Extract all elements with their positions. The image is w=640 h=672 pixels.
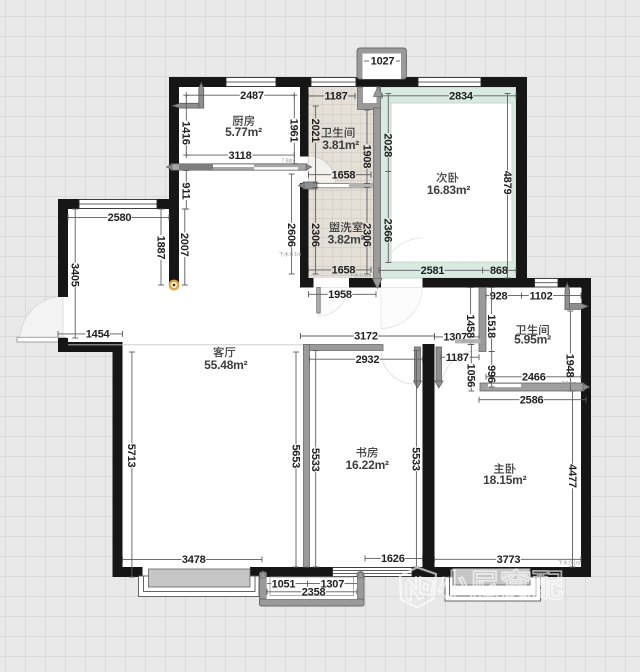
svg-text:3.81m²: 3.81m² bbox=[322, 138, 359, 152]
svg-text:7.8dm: 7.8dm bbox=[282, 158, 296, 164]
svg-text:1027: 1027 bbox=[371, 56, 395, 68]
svg-text:1626: 1626 bbox=[381, 553, 405, 565]
svg-text:1518: 1518 bbox=[485, 314, 497, 338]
svg-text:3118: 3118 bbox=[228, 150, 251, 162]
svg-text:996: 996 bbox=[485, 365, 497, 383]
svg-text:1187: 1187 bbox=[324, 91, 347, 103]
svg-text:1187: 1187 bbox=[446, 352, 469, 364]
svg-text:1658: 1658 bbox=[332, 169, 356, 181]
svg-text:3478: 3478 bbox=[182, 554, 206, 566]
svg-text:5.95m²: 5.95m² bbox=[514, 333, 551, 347]
svg-text:2487: 2487 bbox=[240, 90, 264, 102]
svg-text:2932: 2932 bbox=[356, 354, 380, 366]
svg-text:7.8:0m: 7.8:0m bbox=[561, 381, 576, 387]
svg-text:3.82m²: 3.82m² bbox=[328, 233, 365, 247]
svg-text:1416: 1416 bbox=[180, 121, 192, 145]
svg-text:4477: 4477 bbox=[566, 464, 578, 488]
svg-text:4879: 4879 bbox=[501, 171, 513, 195]
svg-text:1056: 1056 bbox=[465, 364, 477, 388]
svg-text:1948: 1948 bbox=[564, 354, 576, 378]
svg-text:3172: 3172 bbox=[354, 331, 378, 343]
svg-text:1454: 1454 bbox=[86, 329, 111, 341]
svg-text:2306: 2306 bbox=[309, 223, 321, 247]
svg-text:868: 868 bbox=[490, 265, 508, 277]
svg-text:2007: 2007 bbox=[178, 233, 190, 257]
svg-text:5713: 5713 bbox=[125, 444, 137, 468]
svg-text:2606: 2606 bbox=[285, 223, 297, 247]
svg-text:157mm: 157mm bbox=[461, 339, 475, 344]
svg-text:1458: 1458 bbox=[464, 314, 476, 338]
svg-text:1887: 1887 bbox=[154, 236, 166, 260]
svg-text:1102: 1102 bbox=[529, 290, 552, 302]
svg-text:1961: 1961 bbox=[288, 119, 300, 143]
svg-text:2581: 2581 bbox=[421, 265, 445, 277]
svg-text:928: 928 bbox=[490, 290, 508, 302]
svg-text:5533: 5533 bbox=[410, 447, 422, 471]
svg-text:55.48m²: 55.48m² bbox=[204, 358, 247, 372]
svg-text:1051: 1051 bbox=[272, 578, 296, 590]
svg-text:2366: 2366 bbox=[382, 219, 394, 243]
svg-text:5653: 5653 bbox=[289, 444, 301, 468]
svg-text:16.83m²: 16.83m² bbox=[427, 183, 470, 197]
svg-text:5533: 5533 bbox=[309, 448, 321, 472]
svg-text:2358: 2358 bbox=[302, 587, 326, 599]
svg-text:2466: 2466 bbox=[522, 372, 546, 384]
svg-text:下水:0.1m: 下水:0.1m bbox=[279, 251, 302, 258]
svg-text:下水:0.1m: 下水:0.1m bbox=[349, 272, 372, 279]
svg-text:下水:0.1m: 下水:0.1m bbox=[558, 559, 581, 566]
svg-text:18.15m²: 18.15m² bbox=[483, 473, 526, 487]
svg-text:3773: 3773 bbox=[497, 554, 521, 566]
svg-text:5.77m²: 5.77m² bbox=[225, 125, 262, 139]
svg-text:2021: 2021 bbox=[309, 119, 321, 143]
svg-text:3405: 3405 bbox=[68, 263, 80, 287]
svg-text:1958: 1958 bbox=[328, 289, 352, 301]
svg-text:2580: 2580 bbox=[108, 212, 132, 224]
svg-text:2028: 2028 bbox=[382, 133, 394, 157]
svg-text:16.22m²: 16.22m² bbox=[346, 458, 389, 472]
svg-text:1908: 1908 bbox=[360, 145, 372, 169]
svg-text:911: 911 bbox=[180, 182, 192, 199]
svg-text:2586: 2586 bbox=[520, 394, 544, 406]
svg-text:2834: 2834 bbox=[449, 91, 474, 103]
